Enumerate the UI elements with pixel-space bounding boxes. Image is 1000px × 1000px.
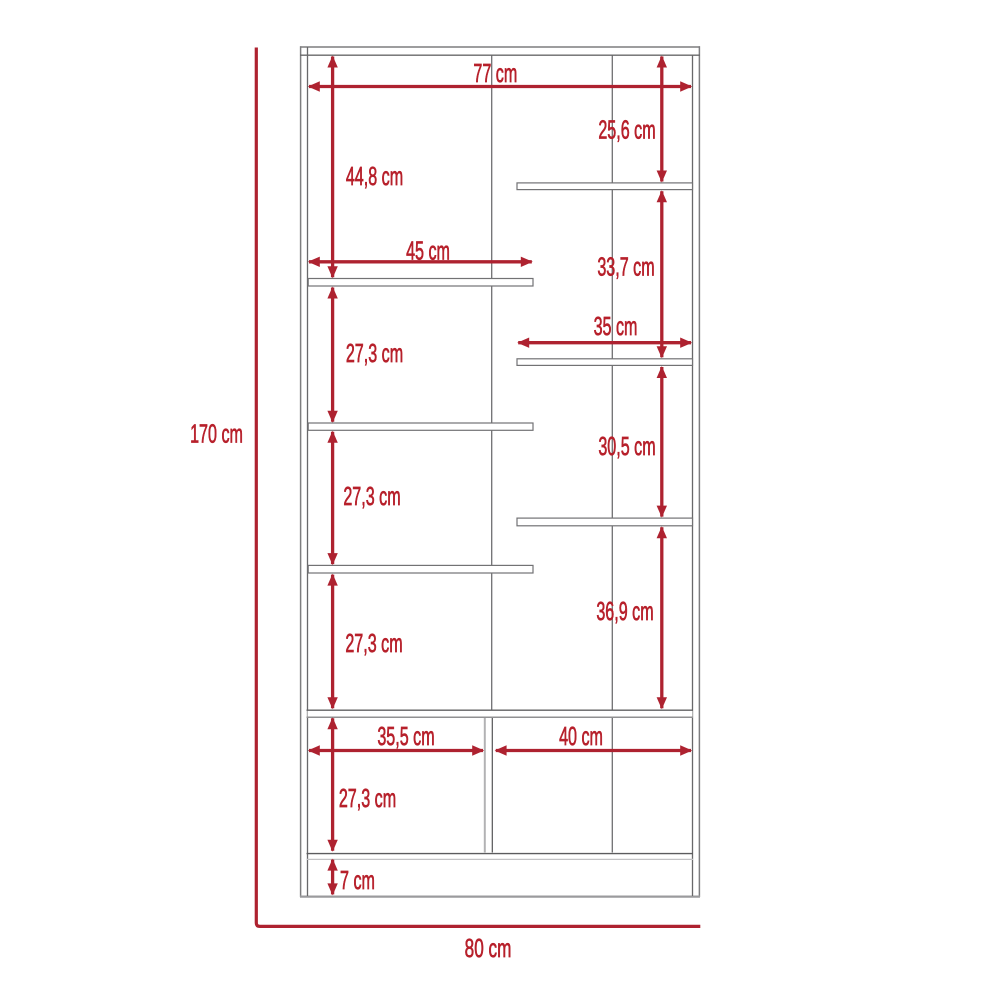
- svg-text:7 cm: 7 cm: [340, 865, 375, 895]
- svg-text:27,3 cm: 27,3 cm: [345, 628, 402, 658]
- svg-text:36,9 cm: 36,9 cm: [596, 596, 653, 626]
- svg-text:33,7 cm: 33,7 cm: [597, 251, 654, 281]
- svg-text:44,8 cm: 44,8 cm: [346, 161, 403, 191]
- svg-text:25,6 cm: 25,6 cm: [598, 114, 655, 144]
- svg-text:40 cm: 40 cm: [559, 721, 603, 751]
- svg-text:27,3 cm: 27,3 cm: [346, 338, 403, 368]
- svg-text:35 cm: 35 cm: [594, 311, 638, 341]
- svg-text:45 cm: 45 cm: [406, 235, 450, 265]
- svg-text:35,5 cm: 35,5 cm: [377, 721, 434, 751]
- svg-text:80 cm: 80 cm: [465, 933, 512, 963]
- svg-text:77 cm: 77 cm: [473, 58, 517, 88]
- svg-text:30,5 cm: 30,5 cm: [598, 431, 655, 461]
- svg-text:27,3 cm: 27,3 cm: [339, 783, 396, 813]
- svg-text:27,3 cm: 27,3 cm: [343, 481, 400, 511]
- svg-text:170 cm: 170 cm: [190, 418, 243, 448]
